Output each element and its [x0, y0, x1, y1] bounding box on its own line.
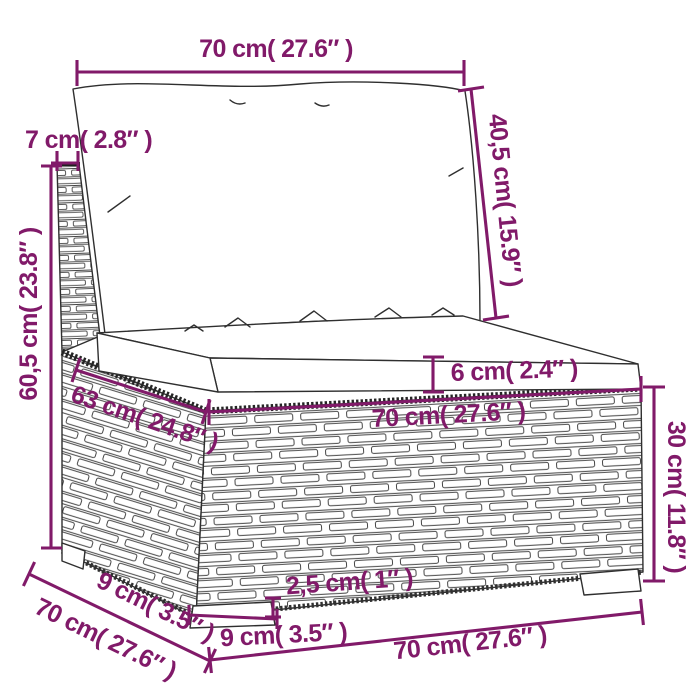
dimension-label: 6 cm( 2.4″ ): [450, 355, 578, 387]
dim-total-height: 60,5 cm( 23.8″ ): [15, 166, 62, 548]
dimension-tick: [209, 647, 212, 673]
dimension-tick: [458, 87, 484, 91]
dimension-diagram-page: 70 cm( 27.6″ ) 7 cm( 2.8″ ) 60,5 cm( 23.…: [0, 0, 700, 700]
front-right-foot: [580, 569, 641, 595]
dim-base-height: 30 cm( 11.8″ ): [643, 387, 690, 581]
sofa-dimension-diagram: 70 cm( 27.6″ ) 7 cm( 2.8″ ) 60,5 cm( 23.…: [0, 0, 700, 700]
dimension-tick: [483, 316, 509, 320]
dimension-label: 30 cm( 11.8″ ): [662, 421, 690, 574]
dimension-tick: [23, 562, 34, 586]
dimension-tick: [641, 599, 644, 625]
dim-top-width: 70 cm( 27.6″ ): [77, 35, 464, 86]
dimension-label: 70 cm( 27.6″ ): [392, 621, 548, 666]
dimension-label: 70 cm( 27.6″ ): [199, 35, 353, 63]
back-cushion: [73, 82, 480, 334]
dimension-label: 7 cm( 2.8″ ): [25, 126, 152, 154]
dimension-label: 60,5 cm( 23.8″ ): [15, 227, 43, 401]
